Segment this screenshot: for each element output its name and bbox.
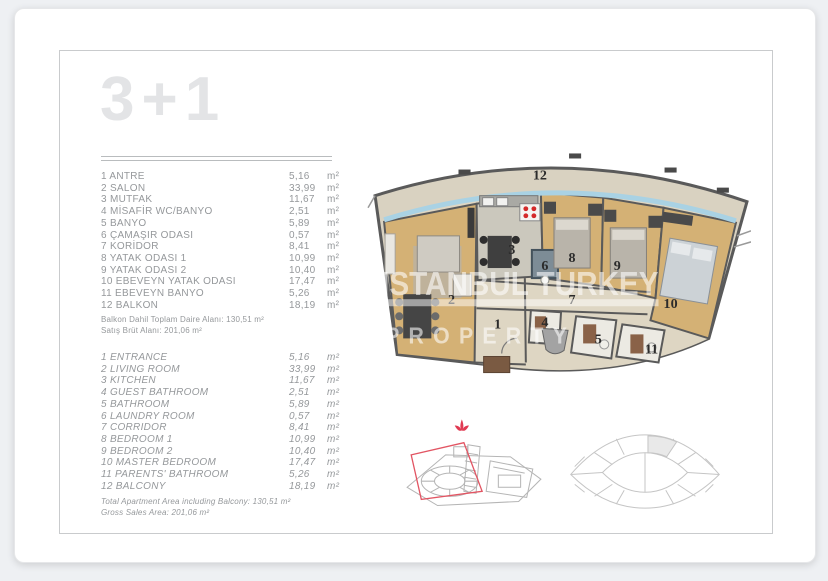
- area-unit: m²: [327, 469, 349, 481]
- site-3d-sketch: [397, 415, 549, 519]
- area-unit: m²: [327, 457, 349, 469]
- floor-plan: 12 2 3 8 9 10 7 1 4 5 11 6 ISTANBUL TURK…: [363, 145, 751, 375]
- room-area: 2,51: [289, 387, 327, 399]
- entrance-mat: [484, 356, 510, 372]
- room-name: 6 LAUNDRY ROOM: [101, 411, 289, 423]
- watermark-bar: [381, 299, 658, 306]
- page-title: 3+1: [100, 69, 226, 131]
- room-name: 12 BALCONY: [101, 481, 289, 493]
- room-list-row: 5 BATHROOM5,89m²: [101, 399, 349, 411]
- area-unit: m²: [327, 241, 349, 253]
- room-area: 18,19: [289, 300, 327, 312]
- location-marker-icon: [455, 419, 469, 430]
- room-list-row: 10 EBEVEYN YATAK ODASI17,47m²: [101, 276, 349, 288]
- room-area: 10,40: [289, 446, 327, 458]
- room-list-row: 1 ANTRE5,16m²: [101, 171, 349, 183]
- room-name: 8 BEDROOM 1: [101, 434, 289, 446]
- room-name: 3 KITCHEN: [101, 375, 289, 387]
- page-background: 3+1 1 ANTRE5,16m²2 SALON33,99m²3 MUTFAK1…: [0, 0, 828, 581]
- room-name: 8 YATAK ODASI 1: [101, 253, 289, 265]
- room-list-row: 10 MASTER BEDROOM17,47m²: [101, 457, 349, 469]
- area-unit: m²: [327, 481, 349, 493]
- area-unit: m²: [327, 230, 349, 242]
- room-area: 17,47: [289, 276, 327, 288]
- room-name: 4 MİSAFİR WC/BANYO: [101, 206, 289, 218]
- room-list-row: 3 KITCHEN11,67m²: [101, 375, 349, 387]
- room-name: 7 CORRIDOR: [101, 422, 289, 434]
- label-bedroom1: 8: [569, 250, 576, 266]
- area-unit: m²: [327, 434, 349, 446]
- room-name: 5 BANYO: [101, 218, 289, 230]
- area-unit: m²: [327, 375, 349, 387]
- room-name: 6 ÇAMAŞIR ODASI: [101, 230, 289, 242]
- room-area: 10,99: [289, 434, 327, 446]
- room-list-row: 7 KORİDOR8,41m²: [101, 241, 349, 253]
- area-unit: m²: [327, 206, 349, 218]
- room-area: 33,99: [289, 183, 327, 195]
- room-list-row: 1 ENTRANCE5,16m²: [101, 352, 349, 364]
- room-area: 5,26: [289, 288, 327, 300]
- label-master: 10: [664, 296, 678, 312]
- room-name: 10 MASTER BEDROOM: [101, 457, 289, 469]
- room-area: 18,19: [289, 481, 327, 493]
- room-area: 5,16: [289, 171, 327, 183]
- room-list-tr: 1 ANTRE5,16m²2 SALON33,99m²3 MUTFAK11,67…: [101, 171, 349, 311]
- room-name: 9 YATAK ODASI 2: [101, 265, 289, 277]
- room-area: 5,16: [289, 352, 327, 364]
- area-unit: m²: [327, 411, 349, 423]
- room-list-row: 5 BANYO5,89m²: [101, 218, 349, 230]
- area-unit: m²: [327, 399, 349, 411]
- room-list-row: 6 ÇAMAŞIR ODASI0,57m²: [101, 230, 349, 242]
- area-unit: m²: [327, 387, 349, 399]
- room-name: 3 MUTFAK: [101, 194, 289, 206]
- total-line: Balkon Dahil Toplam Daire Alanı: 130,51 …: [101, 314, 401, 325]
- room-list-row: 8 BEDROOM 110,99m²: [101, 434, 349, 446]
- room-name: 2 LIVING ROOM: [101, 364, 289, 376]
- brochure-card: 3+1 1 ANTRE5,16m²2 SALON33,99m²3 MUTFAK1…: [14, 8, 816, 563]
- room-name: 4 GUEST BATHROOM: [101, 387, 289, 399]
- label-parents-bath: 11: [645, 341, 658, 357]
- floor-plan-drawing: 12 2 3 8 9 10 7 1 4 5 11 6 ISTANBUL TURK…: [363, 145, 751, 375]
- room-area: 2,51: [289, 206, 327, 218]
- room-area: 0,57: [289, 411, 327, 423]
- area-unit: m²: [327, 265, 349, 277]
- room-area: 5,89: [289, 399, 327, 411]
- room-list-row: 7 CORRIDOR8,41m²: [101, 422, 349, 434]
- room-area: 8,41: [289, 422, 327, 434]
- room-area: 17,47: [289, 457, 327, 469]
- room-list-row: 8 YATAK ODASI 110,99m²: [101, 253, 349, 265]
- room-list-row: 6 LAUNDRY ROOM0,57m²: [101, 411, 349, 423]
- room-name: 9 BEDROOM 2: [101, 446, 289, 458]
- total-line: Total Apartment Area including Balcony: …: [101, 496, 401, 507]
- room-list-row: 9 BEDROOM 210,40m²: [101, 446, 349, 458]
- room-area: 11,67: [289, 375, 327, 387]
- room-list-row: 11 PARENTS' BATHROOM5,26m²: [101, 469, 349, 481]
- area-unit: m²: [327, 218, 349, 230]
- label-kitchen: 3: [508, 242, 515, 258]
- watermark-line1: ISTANBUL TURKEY: [381, 266, 658, 303]
- room-name: 10 EBEVEYN YATAK ODASI: [101, 276, 289, 288]
- watermark-line2: PROPERTY: [385, 322, 576, 348]
- site-3d-drawing: [397, 415, 549, 519]
- room-name: 11 EBEVEYN BANYO: [101, 288, 289, 300]
- room-area: 0,57: [289, 230, 327, 242]
- room-list-row: 3 MUTFAK11,67m²: [101, 194, 349, 206]
- title-divider: [101, 156, 332, 161]
- room-list-row: 12 BALKON18,19m²: [101, 300, 349, 312]
- room-name: 1 ANTRE: [101, 171, 289, 183]
- label-balcony: 12: [533, 168, 547, 184]
- area-unit: m²: [327, 352, 349, 364]
- room-area: 8,41: [289, 241, 327, 253]
- area-unit: m²: [327, 446, 349, 458]
- area-unit: m²: [327, 253, 349, 265]
- room-area: 5,26: [289, 469, 327, 481]
- room-name: 12 BALKON: [101, 300, 289, 312]
- room-area: 10,99: [289, 253, 327, 265]
- room-name: 1 ENTRANCE: [101, 352, 289, 364]
- room-list-row: 2 SALON33,99m²: [101, 183, 349, 195]
- area-unit: m²: [327, 183, 349, 195]
- room-list-row: 4 GUEST BATHROOM2,51m²: [101, 387, 349, 399]
- area-unit: m²: [327, 288, 349, 300]
- room-name: 5 BATHROOM: [101, 399, 289, 411]
- area-unit: m²: [327, 422, 349, 434]
- area-unit: m²: [327, 364, 349, 376]
- total-line: Gross Sales Area: 201,06 m²: [101, 507, 401, 518]
- label-bath: 5: [595, 331, 602, 347]
- room-list-row: 12 BALCONY18,19m²: [101, 481, 349, 493]
- room-list-row: 11 EBEVEYN BANYO5,26m²: [101, 288, 349, 300]
- total-line: Satış Brüt Alanı: 201,06 m²: [101, 325, 401, 336]
- room-name: 7 KORİDOR: [101, 241, 289, 253]
- area-unit: m²: [327, 300, 349, 312]
- room-list-row: 9 YATAK ODASI 210,40m²: [101, 265, 349, 277]
- room-area: 5,89: [289, 218, 327, 230]
- room-list-en: 1 ENTRANCE5,16m²2 LIVING ROOM33,99m²3 KI…: [101, 352, 349, 492]
- area-unit: m²: [327, 171, 349, 183]
- area-unit: m²: [327, 276, 349, 288]
- room-name: 2 SALON: [101, 183, 289, 195]
- room-name: 11 PARENTS' BATHROOM: [101, 469, 289, 481]
- room-list-row: 4 MİSAFİR WC/BANYO2,51m²: [101, 206, 349, 218]
- totals-tr: Balkon Dahil Toplam Daire Alanı: 130,51 …: [101, 314, 401, 336]
- room-area: 33,99: [289, 364, 327, 376]
- totals-en: Total Apartment Area including Balcony: …: [101, 496, 401, 518]
- floor-key-plan: [563, 423, 727, 520]
- room-area: 10,40: [289, 265, 327, 277]
- key-plan-drawing: [563, 423, 727, 520]
- room-list-row: 2 LIVING ROOM33,99m²: [101, 364, 349, 376]
- room-area: 11,67: [289, 194, 327, 206]
- area-unit: m²: [327, 194, 349, 206]
